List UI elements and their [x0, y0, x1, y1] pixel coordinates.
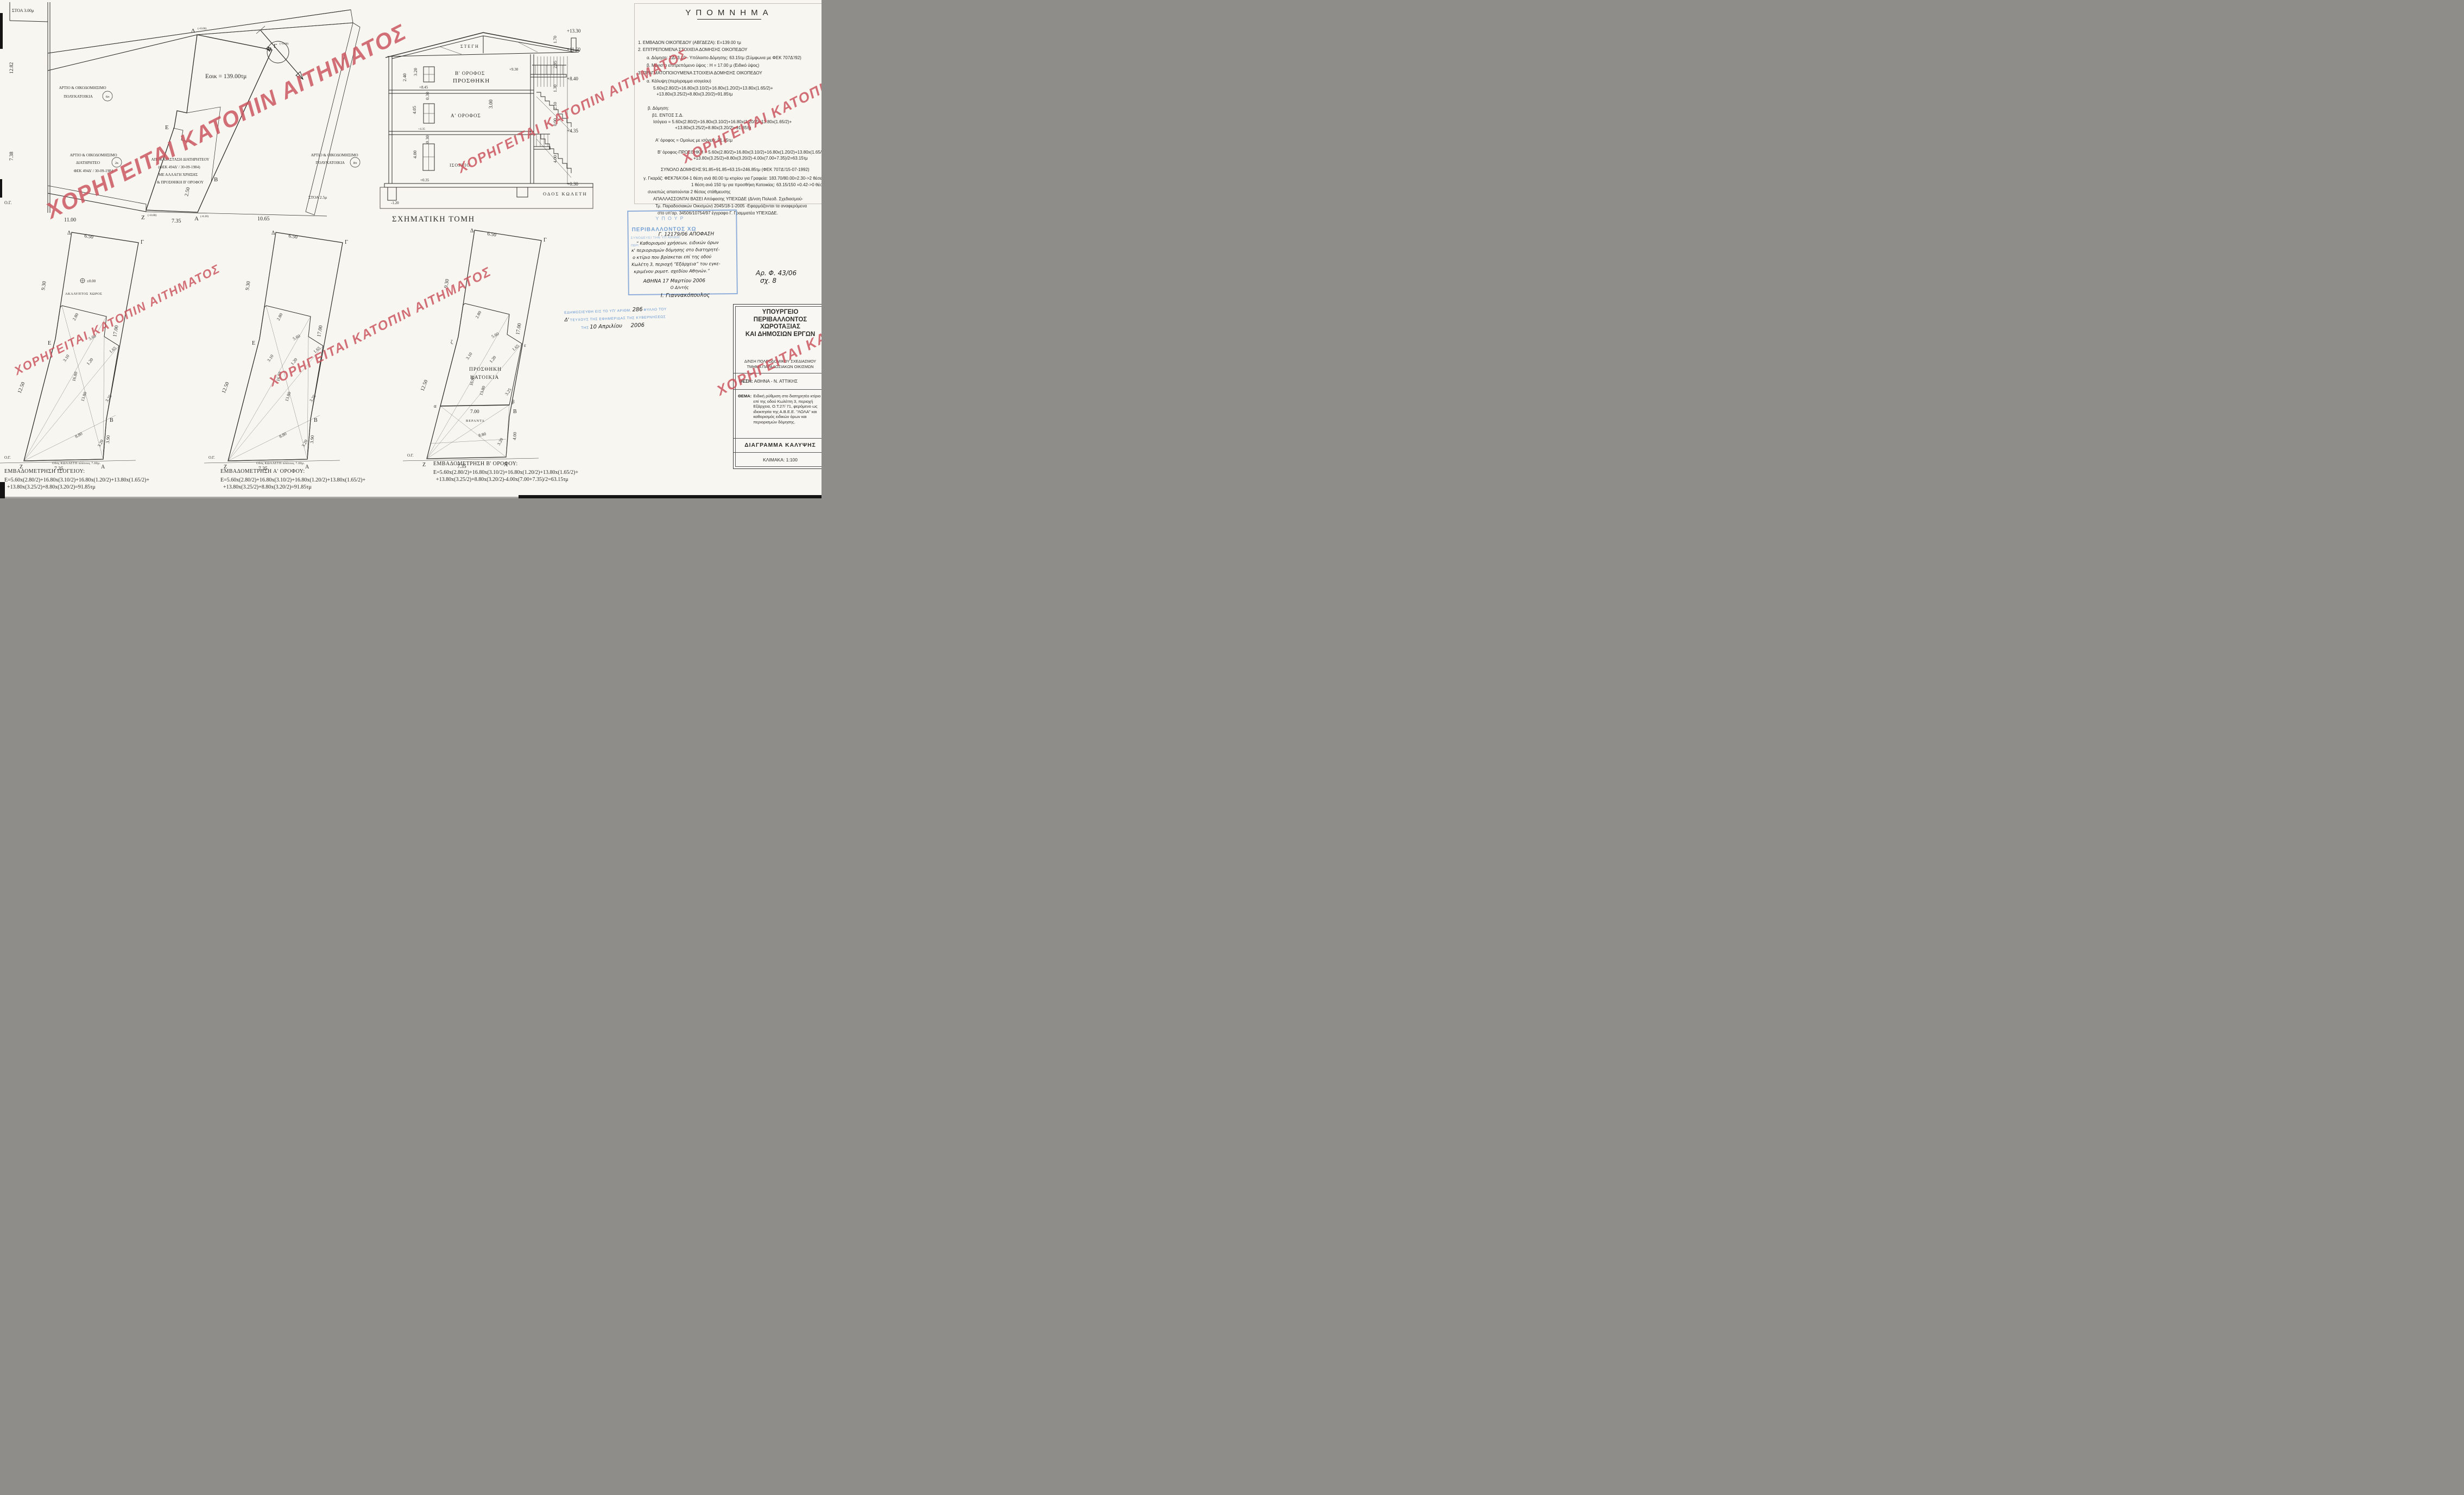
- subject-text: Ειδική ρύθμιση στο διατηρητέο κτίριο επί…: [753, 394, 822, 425]
- svg-text:2.10: 2.10: [553, 102, 558, 110]
- svg-text:+4.35: +4.35: [418, 128, 425, 131]
- divider: [734, 452, 822, 453]
- corner-label: Β: [513, 409, 517, 415]
- building-line-label: Ο.Γ.: [407, 453, 414, 458]
- dim: 6.50: [487, 231, 497, 238]
- legend-line: 1. ΕΜΒΑΔΟΝ ΟΙΚΟΠΕΔΟΥ (ΑΒΓΔΕΖΑ): Ε=139.00…: [638, 40, 822, 46]
- building-line-label: Ο.Γ.: [209, 455, 215, 460]
- svg-text:13.80: 13.80: [478, 385, 486, 396]
- svg-text:4.00: 4.00: [412, 150, 418, 159]
- svg-text:2.80: 2.80: [72, 312, 80, 321]
- stamp-hand-line: κριμένου ρυμοτ. σχεδίου Αθηνών.”: [634, 268, 710, 274]
- divider: [734, 438, 822, 439]
- svg-text:1.20: 1.20: [489, 355, 497, 364]
- svg-text:5.60: 5.60: [292, 333, 301, 341]
- dim: 2.50: [184, 187, 191, 197]
- svg-text:4.05: 4.05: [412, 106, 417, 114]
- svg-text:2.95: 2.95: [553, 61, 558, 68]
- dim: 12.82: [9, 62, 15, 74]
- svg-text:2.40: 2.40: [402, 73, 407, 81]
- corner-label: Δ: [191, 28, 195, 34]
- neighbor-right-badge: 8π: [353, 161, 357, 165]
- neighbor-left-line: ΑΡΤΙΟ & ΟΙΚΟΔΟΜΗΣΙΜΟ: [70, 153, 117, 157]
- building-line-label: Ο.Γ.: [4, 200, 11, 205]
- area-calc-second: ΕΜΒΑΔΟΜΕΤΡΗΣΗ Β' ΟΡΟΦΟΥ: Ε=5.60x(2.80/2)…: [433, 460, 578, 483]
- stair-elev: +9.30: [509, 67, 519, 72]
- svg-text:8.80: 8.80: [478, 432, 487, 438]
- corner-label: Β: [214, 176, 218, 183]
- legend-line: α. Κάλυψη:(περίγραμμα ισογείου): [647, 79, 822, 84]
- svg-text:0.30: 0.30: [425, 135, 430, 143]
- svg-text:+0.30: +0.30: [567, 181, 578, 187]
- section-dims-left: 2.40 3.20 0.30 4.05 0.30 4.00: [402, 68, 430, 159]
- corner-label: ζ: [451, 339, 453, 345]
- legend-line: +13.80x(3.25/2)+8.80x(3.20/2)-4.00x(7.00…: [693, 156, 822, 161]
- svg-text:0.30: 0.30: [425, 92, 430, 100]
- yard-elevation: ±0.00: [87, 279, 96, 283]
- pub-printed: ΕΔΗΜΟΣΙΕΥΘΗ ΕΙΣ ΤΟ ΥΠ' ΑΡΙΘΜ.: [564, 309, 631, 315]
- neighbor-right-line: ΑΡΤΙΟ & ΟΙΚΟΔΟΜΗΣΙΜΟ: [311, 153, 358, 157]
- stoa-right-label: ΣΤΟΑ 2.5μ: [308, 195, 327, 200]
- svg-text:8.80: 8.80: [279, 431, 288, 439]
- corner-label: Δ: [67, 230, 71, 236]
- corner-label: β: [512, 399, 515, 404]
- dim: 17.00: [515, 322, 523, 335]
- svg-text:+0.35: +0.35: [420, 178, 429, 182]
- legend-rule: [697, 19, 761, 20]
- neighbor-top-line: ΑΡΤΙΟ & ΟΙΚΟΔΟΜΗΣΙΜΟ: [59, 86, 106, 90]
- subject-label: ΘΕΜΑ:: [738, 394, 751, 425]
- svg-text:3.25: 3.25: [308, 394, 317, 403]
- corner-label: Ε: [252, 340, 255, 346]
- roof-label: ΣΤΕΓΗ: [460, 44, 479, 49]
- dim: 17.00: [317, 325, 324, 337]
- svg-text:+11.60: +11.60: [567, 47, 580, 52]
- scale-label: ΚΛΙΜΑΚΑ: 1:100: [734, 457, 822, 463]
- calc-formula: Ε=5.60x(2.80/2)+16.80x(3.10/2)+16.80x(1.…: [220, 477, 365, 484]
- drawing-title: ΔΙΑΓΡΑΜΜΑ ΚΑΛΥΨΗΣ: [734, 442, 822, 448]
- stamp-director-title: Ο Δ/ντής: [671, 285, 689, 290]
- scanned-drawing-sheet: ΣΤΟΑ 3.00μ ΣΤΟΑ 2.5μ Ο.Γ. Εοικ = 139.00τ…: [0, 0, 822, 498]
- scan-artifact: [0, 482, 5, 498]
- corner-elev: (+0.00): [280, 42, 289, 46]
- svg-text:1.30: 1.30: [553, 85, 558, 92]
- stamp-header: ΥΠΟΥΡ: [655, 216, 686, 221]
- svg-text:2.80: 2.80: [475, 310, 483, 319]
- floor2-label: ΠΡΟΣΘΗΚΗ: [453, 78, 490, 84]
- calc-formula: +13.80x(3.25/2)+8.80x(3.20/2)-4.00x(7.00…: [436, 476, 578, 483]
- calc-formula: +13.80x(3.25/2)+8.80x(3.20/2)=91.85τμ: [223, 484, 365, 491]
- corner-elev: (-0.20): [200, 214, 209, 218]
- corner-label: Δ: [470, 228, 474, 234]
- corner-label: Γ: [274, 43, 277, 49]
- stamp-hand-line: ο κτίριο που βρίσκεται επί της οδού: [633, 254, 711, 260]
- building-line-label: Ο.Γ.: [4, 455, 11, 460]
- corner-label: Β: [110, 417, 113, 423]
- pub-printed: ΤΗΣ: [581, 326, 589, 330]
- calc-title: ΕΜΒΑΔΟΜΕΤΡΗΣΗ Α' ΟΡΟΦΟΥ:: [220, 468, 365, 475]
- dim: 12.50: [420, 379, 429, 392]
- floor2-label: Β' ΟΡΟΦΟΣ: [455, 71, 485, 76]
- legend-line: 2. ΕΠΙΤΡΕΠΟΜΕΝΑ ΣΤΟΙΧΕΙΑ ΔΟΜΗΣΗΣ ΟΙΚΟΠΕΔ…: [638, 47, 822, 53]
- svg-text:13.80: 13.80: [80, 391, 87, 402]
- section-dims-right: 1.70 2.95 1.30 2.10 0.90 4.00: [553, 36, 558, 163]
- legend-line: 1 θέση ανά 150 τμ για προσθήκη Κατοικίας…: [691, 182, 822, 188]
- svg-text:5.60: 5.60: [491, 331, 500, 339]
- neighbor-right-line: ΠΟΛΥΚΑΤΟΙΚΙΑ: [315, 161, 345, 165]
- dim: 3.90: [105, 435, 111, 444]
- corner-label: Δ: [271, 230, 275, 236]
- corner-label: Γ: [141, 239, 144, 245]
- svg-text:3.20: 3.20: [413, 68, 418, 76]
- scan-artifact: [0, 13, 3, 49]
- north-icon: Β: [264, 45, 273, 53]
- file-note: Αρ. Φ. 43/06 σχ. 8: [756, 269, 797, 284]
- ministry-line: ΧΩΡΟΤΑΞΙΑΣ: [734, 324, 822, 331]
- svg-text:1.65: 1.65: [109, 346, 118, 354]
- sheet-number: σχ. 8: [760, 277, 797, 284]
- corner-label: Γ: [345, 239, 348, 245]
- pub-printed: ΦΥΛΛΟ ΤΟΥ: [643, 307, 667, 312]
- dim: 9.30: [41, 281, 48, 290]
- stamp-signature: Ι. Γιαννακόπουλος: [661, 292, 710, 299]
- scan-artifact: [0, 497, 519, 498]
- corner-label: α: [434, 403, 437, 409]
- legend-line: ΑΠΑΛΛΑΣΣΟΝΤΑΙ ΒΑΣΕΙ Απόφασης ΥΠΕΧΩΔΕ (Δ/…: [653, 197, 822, 202]
- neighbor-top-badge: 6π: [106, 95, 110, 99]
- svg-text:16.80: 16.80: [71, 371, 78, 382]
- legend-line: ΣΥΝΟΛΟ ΔΟΜΗΣΗΣ:91.85+91.85+63.15=246.85τ…: [661, 167, 822, 173]
- legend-line: Τμ. Παραδοσιακών Οικισμών) 2045/18-1-200…: [655, 204, 822, 209]
- dim: 7.00: [470, 409, 479, 415]
- stamp-hand-line: κ' περιορισμών δόμησης στο διατηρητέ-: [631, 247, 720, 253]
- corner-label: Ζ: [422, 462, 426, 468]
- calc-formula: +13.80x(3.25/2)+8.80x(3.20/2)=91.85τμ: [7, 484, 149, 491]
- street-footnote: Οδός ΚΩΛΛΕΤΗ πλάτους 7.00μ.: [256, 462, 305, 465]
- dim: 3.90: [309, 435, 315, 444]
- street-footnote: Οδός ΚΩΛΛΕΤΗ πλάτους 7.00μ.: [52, 462, 100, 465]
- svg-text:2.80: 2.80: [276, 312, 284, 321]
- restoration-line: ΜΕ ΑΛΛΑΓΗ ΧΡΗΣΗΣ: [159, 173, 198, 177]
- dim: 6.50: [84, 233, 94, 240]
- stamp-decision-number: Γ. 12179/06 ΑΠΟΦΑΣΗ: [659, 231, 715, 237]
- scan-artifact: [519, 495, 822, 498]
- scan-artifact: [0, 179, 2, 198]
- publication-stamp: ΕΔΗΜΟΣΙΕΥΘΗ ΕΙΣ ΤΟ ΥΠ' ΑΡΙΘΜ. 286 ΦΥΛΛΟ …: [564, 305, 687, 342]
- legend-title: ΥΠΟΜΝΗΜΑ: [635, 8, 822, 17]
- corner-elev: (+0.00): [198, 27, 207, 30]
- neighbor-left-line: ΔΙΑΤΗΡΗΤΕΟ: [76, 161, 100, 165]
- dim: 11.00: [64, 217, 76, 223]
- corner-label: Ε: [165, 124, 169, 131]
- stair-dim: 3.00: [489, 99, 494, 109]
- dim: 7.38: [9, 151, 15, 161]
- legend-line: γ. Γκαράζ: ΦΕΚ76Α'/04-1 θέση ανά 80.00 τ…: [643, 176, 822, 181]
- plan-ground-floor: Δ Γ Ε Β Ζ Α Ο.Γ. 6.50 9.30 17.00 12.50 7…: [0, 231, 147, 480]
- calc-title: ΕΜΒΑΔΟΜΕΤΡΗΣΗ ΙΣΟΓΕΙΟΥ:: [4, 468, 149, 475]
- legend-line: συνεπώς απαιτούνται 2 θέσεις στάθμευσης: [648, 189, 822, 195]
- street-label: ΟΔΟΣ ΚΩΛΕΤΗ: [543, 191, 587, 197]
- dim: 6.50: [288, 233, 298, 240]
- neighbor-top-line: ΠΟΛΥΚΑΤΟΙΚΙΑ: [64, 94, 93, 99]
- calc-formula: Ε=5.60x(2.80/2)+16.80x(3.10/2)+16.80x(1.…: [433, 469, 578, 476]
- svg-text:+8.40: +8.40: [567, 76, 578, 81]
- svg-text:3.25: 3.25: [104, 394, 112, 403]
- svg-text:3.20: 3.20: [496, 437, 504, 446]
- area-calc-first: ΕΜΒΑΔΟΜΕΤΡΗΣΗ Α' ΟΡΟΦΟΥ: Ε=5.60x(2.80/2)…: [220, 468, 365, 491]
- corner-label: Ζ: [141, 214, 145, 221]
- ministry-line: ΥΠΟΥΡΓΕΙΟ: [734, 309, 822, 316]
- floor1-label: Α' ΟΡΟΦΟΣ: [451, 113, 481, 118]
- corner-elev: (+0.00): [148, 213, 157, 217]
- pub-year: 2006: [630, 322, 645, 329]
- corner-label: Γ: [544, 237, 547, 243]
- pub-volume: Δ': [565, 318, 570, 323]
- pub-date: 10 Απριλίου: [590, 323, 622, 330]
- section-title: ΣΧΗΜΑΤΙΚΗ ΤΟΜΗ: [392, 215, 475, 224]
- svg-text:8.80: 8.80: [74, 431, 84, 439]
- pub-issue-number: 286: [632, 307, 642, 313]
- legend-line: β1. ΕΝΤΟΣ Σ.Δ.: [652, 113, 822, 118]
- calc-formula: Ε=5.60x(2.80/2)+16.80x(3.10/2)+16.80x(1.…: [4, 477, 149, 484]
- stamp-date: ΑΘΗΝΑ 17 Μαρτίου 2006: [643, 278, 706, 284]
- corner-label: Β: [314, 417, 318, 423]
- dim: 4.00: [511, 432, 517, 440]
- dim: 10.65: [257, 216, 270, 222]
- svg-text:3.10: 3.10: [266, 354, 274, 363]
- approval-stamp: ΥΠΟΥΡ ΠΕΡΙΒΑΛΛΟΝΤΟΣ ΧΩ ΣΥΝΟΔΕΥΕΙ ΤΗΝ ΥΠ …: [627, 210, 738, 295]
- svg-text:+4.35: +4.35: [567, 128, 578, 134]
- svg-text:-1.20: -1.20: [391, 201, 399, 205]
- corner-label: Α: [194, 216, 199, 222]
- pub-printed: ΤΕΥΧΟΥΣ ΤΗΣ ΕΦΗΜΕΡΙΔΑΣ ΤΗΣ ΚΥΒΕΡΝΗΣΕΩΣ: [570, 315, 666, 322]
- dim: 12.50: [17, 381, 26, 394]
- divider: [734, 389, 822, 390]
- stamp-hand-line: Κωλέτη 3, περιοχή “Εξάρχεια” του εγκε-: [631, 261, 720, 267]
- stamp-hand-line: “ Καθορισμού χρήσεων, ειδικών όρων: [636, 240, 719, 246]
- veranda-label: ΒΕΡΑΝΤΑ: [466, 419, 485, 423]
- svg-text:13.80: 13.80: [284, 391, 292, 402]
- stoa-top-label: ΣΤΟΑ 3.00μ: [12, 8, 34, 13]
- area-calc-ground: ΕΜΒΑΔΟΜΕΤΡΗΣΗ ΙΣΟΓΕΙΟΥ: Ε=5.60x(2.80/2)+…: [4, 468, 149, 491]
- dim: 9.30: [245, 281, 252, 290]
- svg-text:1.70: 1.70: [553, 36, 558, 43]
- site-area-label: Εοικ = 139.00τμ: [205, 73, 247, 80]
- svg-text:+13.30: +13.30: [567, 28, 581, 34]
- corner-label: ε: [524, 343, 526, 348]
- dim: 7.35: [172, 218, 181, 224]
- svg-text:+8.45: +8.45: [419, 85, 428, 90]
- svg-text:4.00: 4.00: [553, 155, 558, 163]
- svg-text:1.65: 1.65: [511, 344, 521, 352]
- legend-line: 5.60x(2.80/2)+16.80x(3.10/2)+16.80x(1.20…: [653, 86, 822, 91]
- svg-text:3.10: 3.10: [465, 352, 473, 361]
- svg-text:1.20: 1.20: [86, 357, 94, 366]
- restoration-line: & ΠΡΟΣΘΗΚΗ Β' ΟΡΟΦΟΥ: [157, 180, 204, 185]
- addition-label: ΠΡΟΣΘΗΚΗ: [469, 367, 502, 372]
- dim: 12.50: [221, 381, 230, 394]
- ministry-line: ΠΕΡΙΒΑΛΛΟΝΤΟΣ: [734, 316, 822, 324]
- yard-label: ΑΚΑΛΥΠΤΟΣ ΧΩΡΟΣ: [65, 292, 102, 296]
- plan-second-floor: Δ Γ ζ ε α β Β Ζ Α Ο.Γ. 6.50 9.30 17.00 1…: [403, 229, 549, 478]
- file-number: Αρ. Φ. 43/06: [756, 269, 797, 277]
- calc-title: ΕΜΒΑΔΟΜΕΤΡΗΣΗ Β' ΟΡΟΦΟΥ:: [433, 460, 578, 467]
